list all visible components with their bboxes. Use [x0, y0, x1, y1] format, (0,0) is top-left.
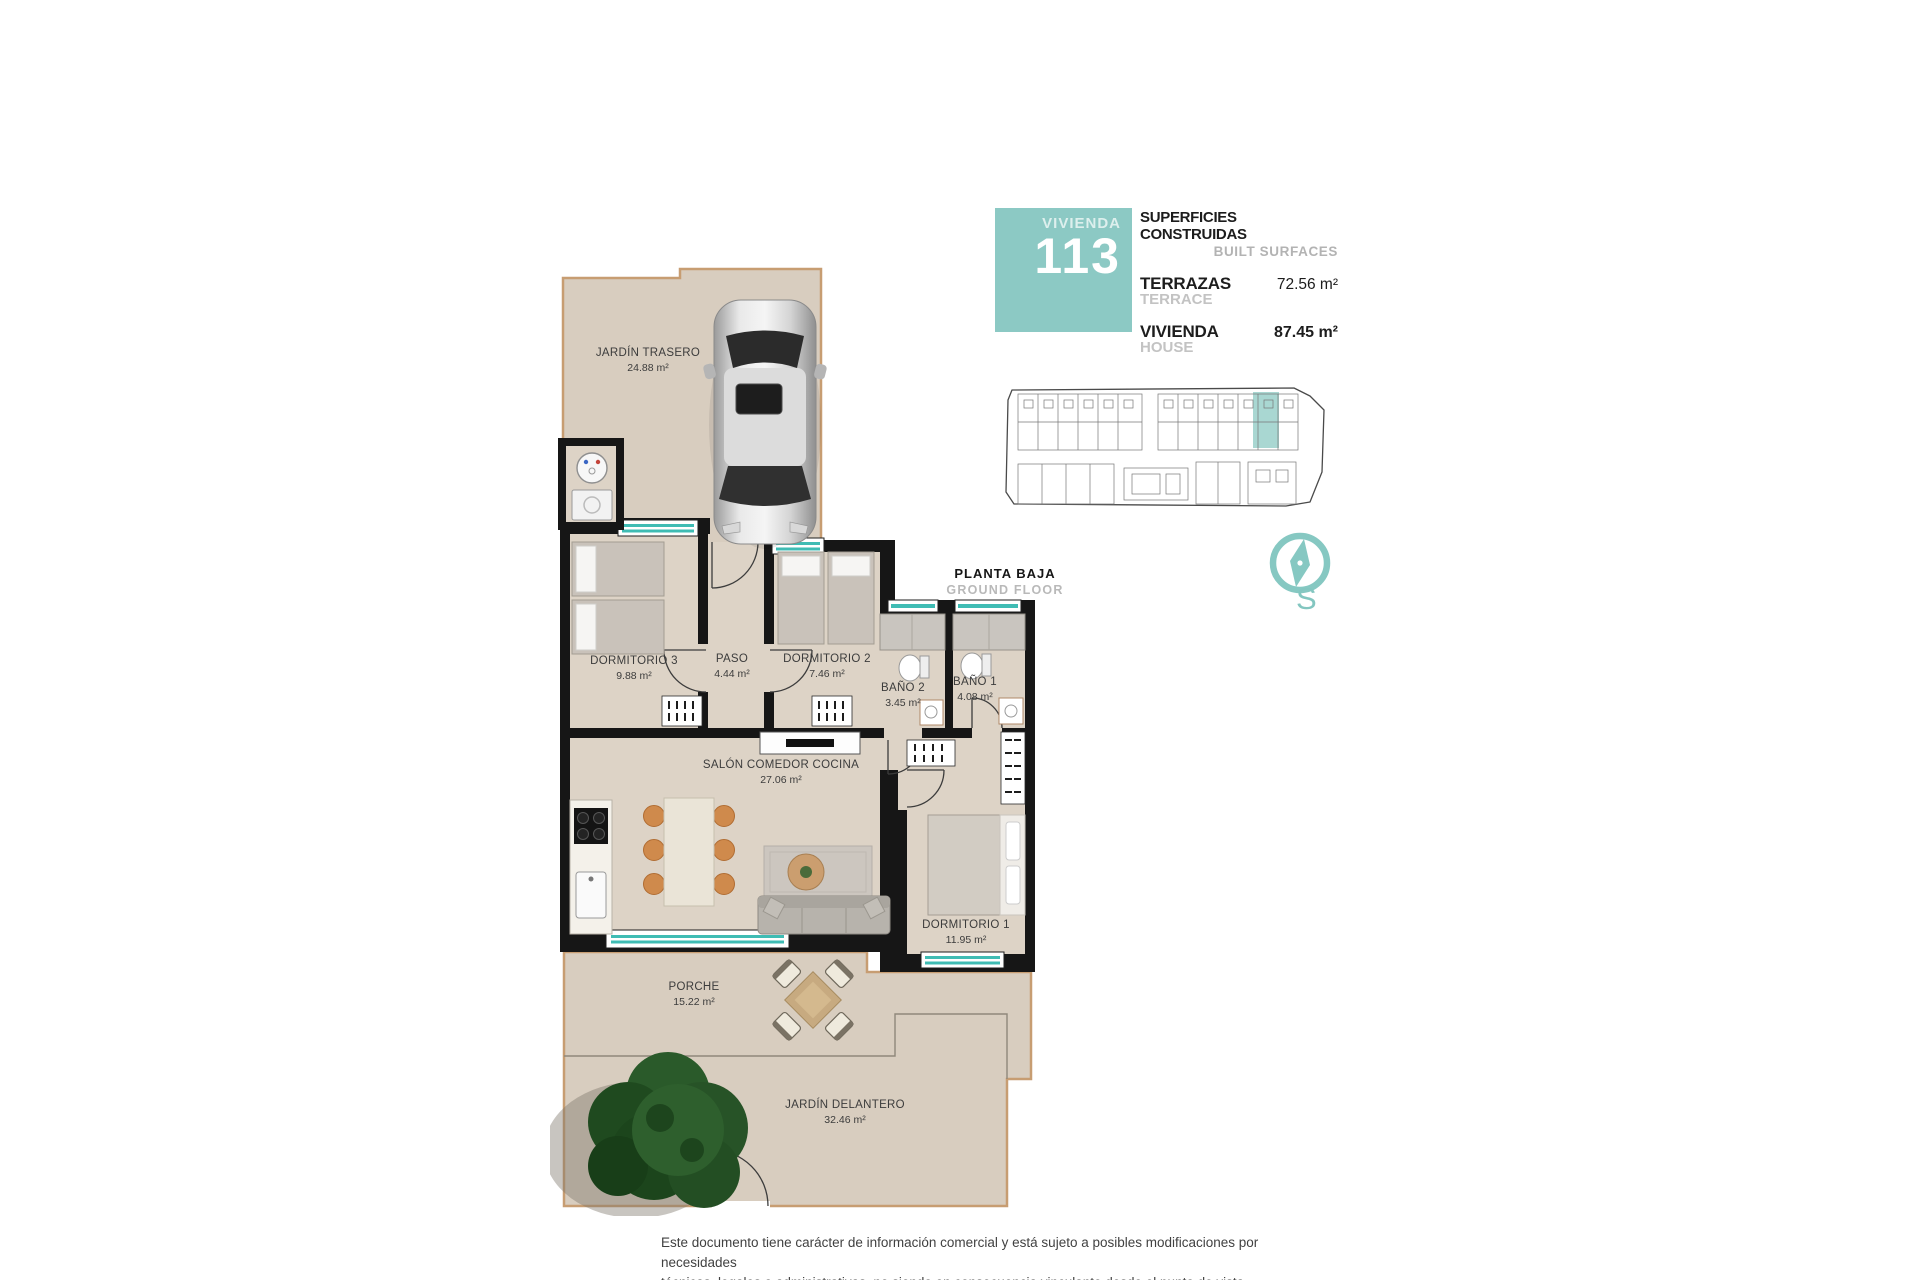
floor-plan-page: JARDÍN TRASERO24.88 m² DORMITORIO 39.88 … — [0, 0, 1920, 1280]
house-sublabel: HOUSE — [1140, 340, 1219, 355]
bedroom1-bed — [928, 815, 1025, 915]
laundry-niche — [558, 438, 624, 530]
compass-south-letter: S — [1296, 581, 1317, 617]
site-plan-minimap — [998, 380, 1334, 514]
floor-subtitle: GROUND FLOOR — [946, 582, 1063, 598]
terrace-sublabel: TERRACE — [1140, 292, 1231, 307]
unit-number-card: VIVIENDA 113 — [995, 208, 1132, 332]
floor-plan-drawing — [550, 260, 1042, 1216]
kitchen — [570, 800, 612, 934]
dining-table — [644, 798, 735, 906]
label-front-garden: JARDÍN DELANTERO32.46 m² — [785, 1098, 905, 1128]
unit-number: 113 — [995, 233, 1121, 279]
house-value: 87.45 m² — [1274, 324, 1338, 342]
house-label: VIVIENDA — [1140, 323, 1219, 340]
terrace-value: 72.56 m² — [1277, 276, 1338, 294]
surfaces-title: SUPERFICIES CONSTRUIDAS — [1140, 209, 1338, 243]
label-back-garden: JARDÍN TRASERO24.88 m² — [596, 346, 700, 376]
terrace-label: TERRAZAS — [1140, 275, 1231, 292]
highlighted-unit — [1253, 392, 1279, 448]
floor-tag: PLANTA BAJA GROUND FLOOR — [946, 566, 1063, 598]
label-bedroom2: DORMITORIO 27.46 m² — [783, 652, 871, 682]
car — [702, 300, 827, 549]
label-bedroom3: DORMITORIO 39.88 m² — [590, 654, 678, 684]
label-bathroom2: BAÑO 23.45 m² — [881, 681, 925, 711]
floor-title: PLANTA BAJA — [946, 566, 1063, 582]
shower-trays — [880, 614, 1025, 650]
tv-unit — [760, 732, 860, 754]
label-living-room: SALÓN COMEDOR COCINA27.06 m² — [703, 758, 859, 788]
living-set — [758, 846, 890, 934]
built-surfaces-panel: SUPERFICIES CONSTRUIDAS BUILT SURFACES T… — [1140, 209, 1338, 355]
surfaces-subtitle: BUILT SURFACES — [1140, 244, 1338, 259]
disclaimer: Este documento tiene carácter de informa… — [661, 1233, 1273, 1280]
label-bathroom1: BAÑO 14.08 m² — [953, 675, 997, 705]
surface-row-house: VIVIENDA HOUSE 87.45 m² — [1140, 323, 1338, 355]
surface-row-terrace: TERRAZAS TERRACE 72.56 m² — [1140, 275, 1338, 307]
disclaimer-line2: técnicas, legales o administrativas, no … — [661, 1273, 1273, 1280]
label-hallway: PASO4.44 m² — [714, 652, 750, 682]
disclaimer-line1: Este documento tiene carácter de informa… — [661, 1233, 1273, 1273]
label-bedroom1: DORMITORIO 111.95 m² — [922, 918, 1010, 948]
label-porch: PORCHE15.22 m² — [668, 980, 719, 1010]
